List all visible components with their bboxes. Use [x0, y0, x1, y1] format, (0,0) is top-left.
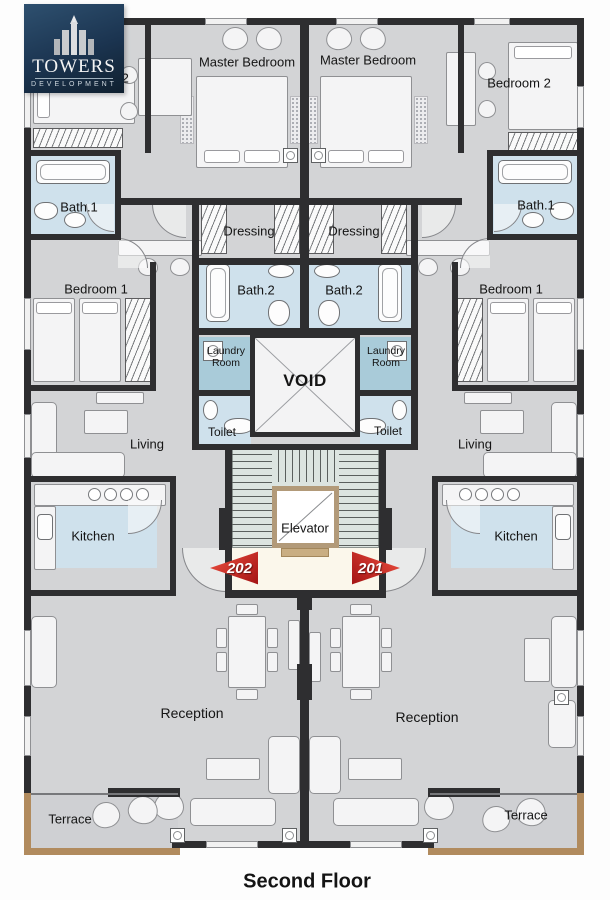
sofa	[309, 736, 341, 794]
wall	[487, 234, 580, 240]
chair	[418, 258, 438, 276]
wall	[115, 150, 121, 240]
room-label-laundry-right: Laundry Room	[358, 345, 414, 369]
bed-pillow	[328, 150, 364, 163]
room-label-master-right: Master Bedroom	[320, 53, 416, 68]
chair	[170, 258, 190, 276]
stair-steps-top	[272, 448, 339, 482]
room-label-bath2-left: Bath.2	[237, 283, 275, 298]
room-label-dressing-right: Dressing	[328, 224, 379, 239]
wall	[199, 328, 411, 335]
wall	[360, 390, 412, 396]
toilet-fixture	[34, 202, 58, 220]
wall	[487, 150, 493, 240]
ceiling-light-icon	[423, 828, 438, 843]
wall	[300, 18, 309, 208]
wall	[458, 18, 464, 153]
ceiling-light-icon	[283, 148, 298, 163]
floor-plan-canvas: Bedroom 2 Master Bedroom Master Bedroom …	[0, 0, 610, 900]
terrace-right-rail	[430, 793, 580, 795]
bed-pillow	[244, 150, 280, 163]
bathtub	[206, 264, 230, 322]
window	[350, 841, 402, 848]
wall	[145, 18, 151, 153]
window	[205, 18, 247, 25]
bed-pillow	[204, 150, 240, 163]
terrace-left-trim	[24, 793, 31, 854]
room-label-bedroom2-right: Bedroom 2	[487, 76, 551, 91]
room-label-bedroom1-left: Bedroom 1	[64, 282, 128, 297]
room-label-laundry-left: Laundry Room	[198, 345, 254, 369]
tv-unit	[288, 620, 300, 670]
wall	[432, 476, 438, 596]
unit-202-number: 202	[227, 560, 252, 577]
wall	[24, 385, 156, 391]
wardrobe	[457, 298, 483, 382]
dining-chair	[330, 628, 341, 648]
terrace-right-trim	[577, 793, 584, 854]
stove-burner	[491, 488, 504, 501]
bed-pillow	[514, 46, 572, 59]
sofa	[31, 452, 125, 478]
ceiling-light-icon	[282, 828, 297, 843]
room-label-toilet-left: Toilet	[208, 425, 236, 439]
wardrobe	[33, 128, 123, 148]
bed-pillow	[536, 302, 572, 314]
bed-pillow	[490, 302, 526, 314]
sofa	[268, 736, 300, 794]
room-label-dressing-left: Dressing	[223, 224, 274, 239]
logo-title: TOWERS	[32, 57, 116, 76]
room-label-terrace-left: Terrace	[48, 812, 91, 827]
bathtub	[36, 160, 110, 184]
wall	[170, 476, 176, 596]
unit-201-number: 201	[358, 560, 383, 577]
wall	[297, 598, 312, 610]
room-label-living-left: Living	[130, 437, 164, 452]
wall	[199, 390, 251, 396]
dining-chair	[350, 604, 372, 615]
bed-pillow	[82, 302, 118, 314]
dining-chair	[216, 628, 227, 648]
room-label-bath2-right: Bath.2	[325, 283, 363, 298]
window	[577, 630, 584, 686]
bed-pillow	[368, 150, 404, 163]
window	[24, 414, 31, 458]
sink	[314, 264, 340, 278]
tv-unit	[464, 392, 512, 404]
stove-burner	[88, 488, 101, 501]
sink	[268, 264, 294, 278]
room-label-toilet-right: Toilet	[374, 424, 402, 438]
elevator-cab	[272, 486, 339, 548]
dining-chair	[267, 652, 278, 672]
wardrobe	[381, 204, 407, 254]
sink	[37, 514, 53, 540]
room-label-terrace-right: Terrace	[504, 808, 547, 823]
stair-steps-right	[339, 448, 379, 548]
ceiling-light-icon	[311, 148, 326, 163]
terrace-right-trim	[428, 848, 584, 855]
wall	[452, 262, 458, 391]
room-label-kitchen-left: Kitchen	[71, 529, 114, 544]
bathtub	[498, 160, 572, 184]
skyscraper-icon	[46, 15, 102, 55]
dining-chair	[381, 652, 392, 672]
wall	[28, 234, 121, 240]
coffee-table	[348, 758, 402, 780]
window	[336, 18, 378, 25]
dining-chair	[236, 689, 258, 700]
wall	[192, 198, 199, 450]
rug	[414, 96, 428, 144]
wall	[432, 476, 584, 482]
sink	[203, 400, 218, 420]
sink	[392, 400, 407, 420]
dining-chair	[216, 652, 227, 672]
sofa	[483, 452, 577, 478]
doormat	[281, 548, 329, 557]
room-label-living-right: Living	[458, 437, 492, 452]
wall	[300, 592, 309, 844]
dining-table	[228, 616, 266, 688]
chair	[120, 102, 138, 120]
room-label-kitchen-right: Kitchen	[494, 529, 537, 544]
room-label-master-left: Master Bedroom	[199, 55, 295, 70]
dining-chair	[236, 604, 258, 615]
stove-burner	[104, 488, 117, 501]
wall	[411, 198, 418, 450]
wardrobe	[508, 132, 578, 152]
sofa	[31, 616, 57, 688]
window	[24, 630, 31, 686]
wall	[199, 258, 411, 265]
bed-pillow	[36, 302, 72, 314]
wall	[452, 385, 584, 391]
room-label-bath1-left: Bath.1	[60, 200, 98, 215]
wall	[487, 150, 580, 156]
stove-burner	[507, 488, 520, 501]
window	[577, 86, 584, 128]
room-label-bath1-right: Bath.1	[517, 198, 555, 213]
dining-table	[342, 616, 380, 688]
wall	[150, 262, 156, 391]
toilet-fixture	[268, 300, 290, 326]
room-label-void: VOID	[283, 371, 327, 391]
logo-subtitle: DEVELOPMENT	[31, 81, 117, 88]
dining-chair	[381, 628, 392, 648]
dining-chair	[330, 652, 341, 672]
bathtub	[378, 264, 402, 322]
toilet-fixture	[318, 300, 340, 326]
terrace-left-trim	[24, 848, 180, 855]
wardrobe	[125, 298, 151, 382]
wall	[28, 150, 121, 156]
coffee-table	[480, 410, 524, 434]
ceiling-light-icon	[170, 828, 185, 843]
dining-chair	[267, 628, 278, 648]
chair	[478, 100, 496, 118]
wall	[432, 590, 584, 596]
coffee-table	[206, 758, 260, 780]
room-label-reception-right: Reception	[395, 709, 458, 725]
wall	[379, 508, 392, 550]
window	[474, 18, 510, 25]
coffee-table	[524, 638, 550, 682]
sofa	[333, 798, 419, 826]
wall	[24, 590, 176, 596]
room-label-reception-left: Reception	[160, 705, 223, 721]
window	[24, 298, 31, 350]
room-label-bedroom1-right: Bedroom 1	[479, 282, 543, 297]
wall	[24, 476, 176, 482]
developer-logo: TOWERS DEVELOPMENT	[24, 4, 124, 93]
sofa	[551, 616, 577, 688]
stair-steps-left	[232, 448, 272, 548]
wall	[219, 508, 232, 550]
ceiling-light-icon	[554, 690, 569, 705]
window	[24, 716, 31, 756]
wall	[297, 664, 312, 700]
sink	[522, 212, 544, 228]
window	[206, 841, 258, 848]
sink	[555, 514, 571, 540]
wall	[225, 590, 386, 598]
window	[577, 716, 584, 756]
sofa	[548, 700, 576, 748]
coffee-table	[84, 410, 128, 434]
window	[577, 298, 584, 350]
terrace-left-rail	[28, 793, 178, 795]
logo-divider	[35, 78, 113, 79]
window	[577, 414, 584, 458]
floor-title: Second Floor	[243, 871, 371, 894]
room-label-elevator: Elevator	[281, 521, 329, 536]
sofa	[190, 798, 276, 826]
dining-chair	[350, 689, 372, 700]
wardrobe	[274, 204, 300, 254]
tv-unit	[96, 392, 144, 404]
